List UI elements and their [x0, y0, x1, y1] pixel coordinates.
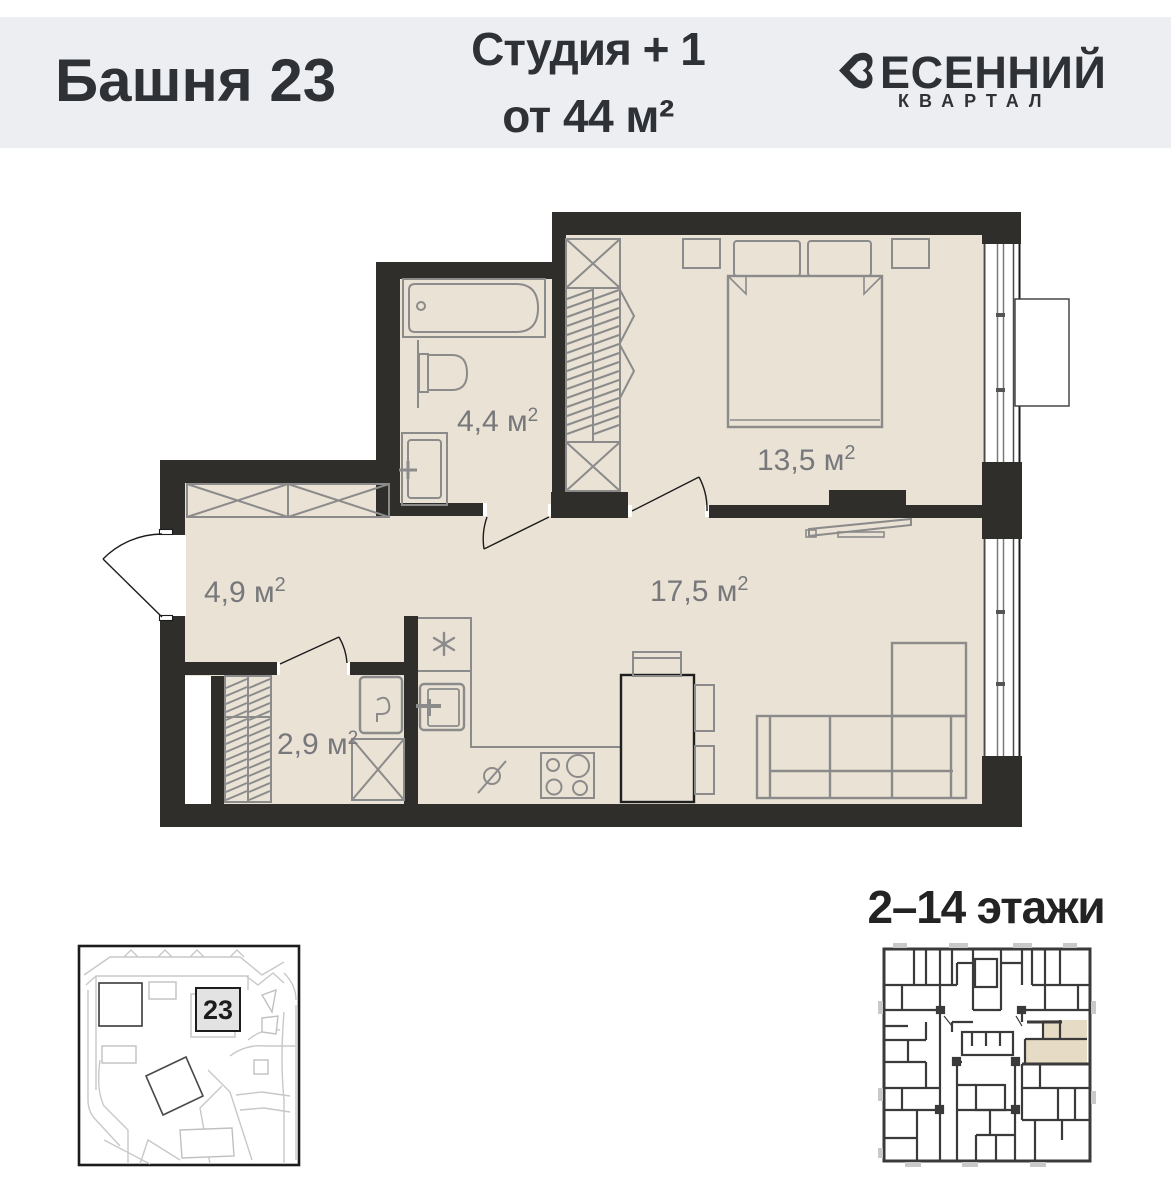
svg-text:23: 23	[203, 995, 233, 1025]
svg-text:4,9 м2: 4,9 м2	[204, 574, 286, 609]
svg-text:13,5 м2: 13,5 м2	[757, 442, 855, 477]
svg-text:2–14 этажи: 2–14 этажи	[868, 881, 1105, 933]
svg-text:2,9 м2: 2,9 м2	[277, 728, 358, 761]
svg-text:4,4 м2: 4,4 м2	[457, 405, 538, 438]
svg-text:17,5 м2: 17,5 м2	[650, 573, 748, 608]
